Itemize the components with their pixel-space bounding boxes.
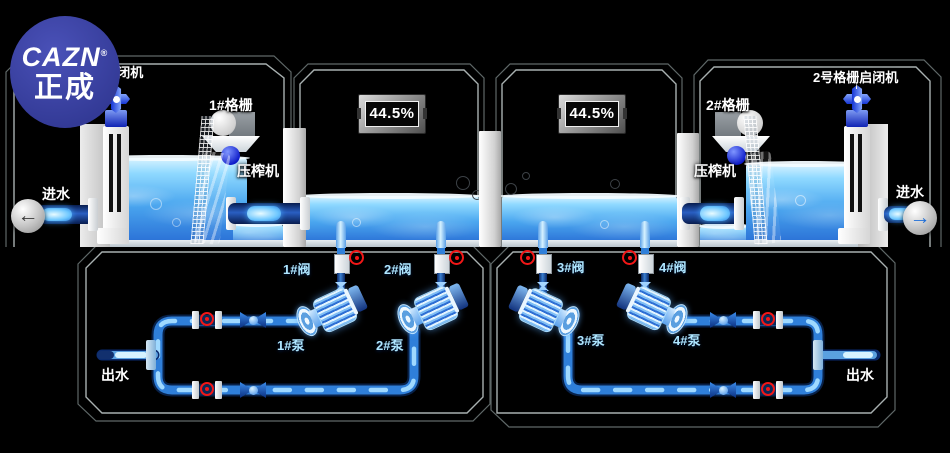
valve-2-label: 2#阀 (384, 259, 411, 278)
level-display-2-value: 44.5% (565, 101, 619, 127)
pump-1-label: 1#泵 (277, 335, 304, 354)
right-arrow-icon: → (910, 206, 931, 229)
valve-2-status-icon[interactable] (449, 250, 464, 265)
left-loop-pipe (158, 321, 414, 390)
level-display-1[interactable]: 44.5% (358, 94, 426, 134)
bubble (150, 198, 162, 210)
transfer-pipe-left (228, 203, 308, 224)
outlet-right-label: 出水 (846, 365, 874, 385)
transfer-pipe-right (682, 203, 742, 224)
scada-water-plant-screen: 44.5% 44.5% (0, 0, 950, 453)
loop-valve-flanged[interactable] (753, 381, 783, 399)
outlet-tee-right (813, 340, 823, 370)
pipe-flange (88, 198, 98, 231)
gate-pillar (479, 131, 501, 247)
loop-valve-flanged[interactable] (753, 311, 783, 329)
press-left-label: 压榨机 (237, 161, 279, 181)
pump-4-label: 4#泵 (673, 330, 700, 349)
loop-valve-gate[interactable] (710, 312, 736, 328)
valve-1-status-icon[interactable] (349, 250, 364, 265)
bubble (522, 172, 530, 180)
inlet-right-arrow-button[interactable]: → (903, 201, 937, 235)
inlet-left-arrow-button[interactable]: ← (11, 199, 45, 233)
pump-2-label: 2#泵 (376, 335, 403, 354)
screen2-label: 2#格栅 (706, 95, 750, 115)
valve-4-status-icon[interactable] (622, 250, 637, 265)
hoist-foot-right (838, 228, 870, 244)
bubble (505, 183, 517, 195)
company-logo: CAZN® 正成 (10, 16, 120, 128)
pipe-flange (734, 197, 744, 230)
outlet-tee-left (146, 340, 156, 370)
level-display-2[interactable]: 44.5% (558, 94, 626, 134)
bubble (600, 220, 609, 229)
inlet-left-label: 进水 (42, 184, 70, 204)
bubble (610, 179, 620, 189)
pipe-flange (300, 197, 310, 230)
loop-valve-gate[interactable] (710, 382, 736, 398)
hoist-handwheel-right-icon[interactable] (843, 87, 871, 111)
logo-registered-mark: ® (101, 48, 109, 58)
loop-valve-gate[interactable] (240, 382, 266, 398)
bubble (795, 195, 806, 206)
level-display-1-value: 44.5% (365, 101, 419, 127)
loop-valve-flanged[interactable] (192, 381, 222, 399)
valve-4-label: 4#阀 (659, 257, 686, 276)
logo-brand-text: CAZN (22, 42, 101, 72)
pump-3-label: 3#泵 (577, 330, 604, 349)
press-right-label: 压榨机 (694, 161, 736, 181)
bubble (172, 218, 181, 227)
hoist-tower-right (844, 126, 870, 244)
hoist-right-label: 2号格栅启闭机 (813, 67, 898, 86)
left-arrow-icon: ← (18, 204, 39, 227)
logo-name-text: 正成 (10, 73, 120, 103)
hoist-foot-left (97, 228, 129, 244)
valve-3-status-icon[interactable] (520, 250, 535, 265)
outlet-left-label: 出水 (101, 365, 129, 385)
hoist-tower-left (103, 126, 129, 244)
bubble (456, 176, 470, 190)
valve-1-label: 1#阀 (283, 259, 310, 278)
valve-3-label: 3#阀 (557, 257, 584, 276)
loop-valve-gate[interactable] (240, 312, 266, 328)
inlet-right-label: 进水 (896, 182, 924, 202)
loop-valve-flanged[interactable] (192, 311, 222, 329)
screen1-label: 1#格栅 (209, 95, 253, 115)
